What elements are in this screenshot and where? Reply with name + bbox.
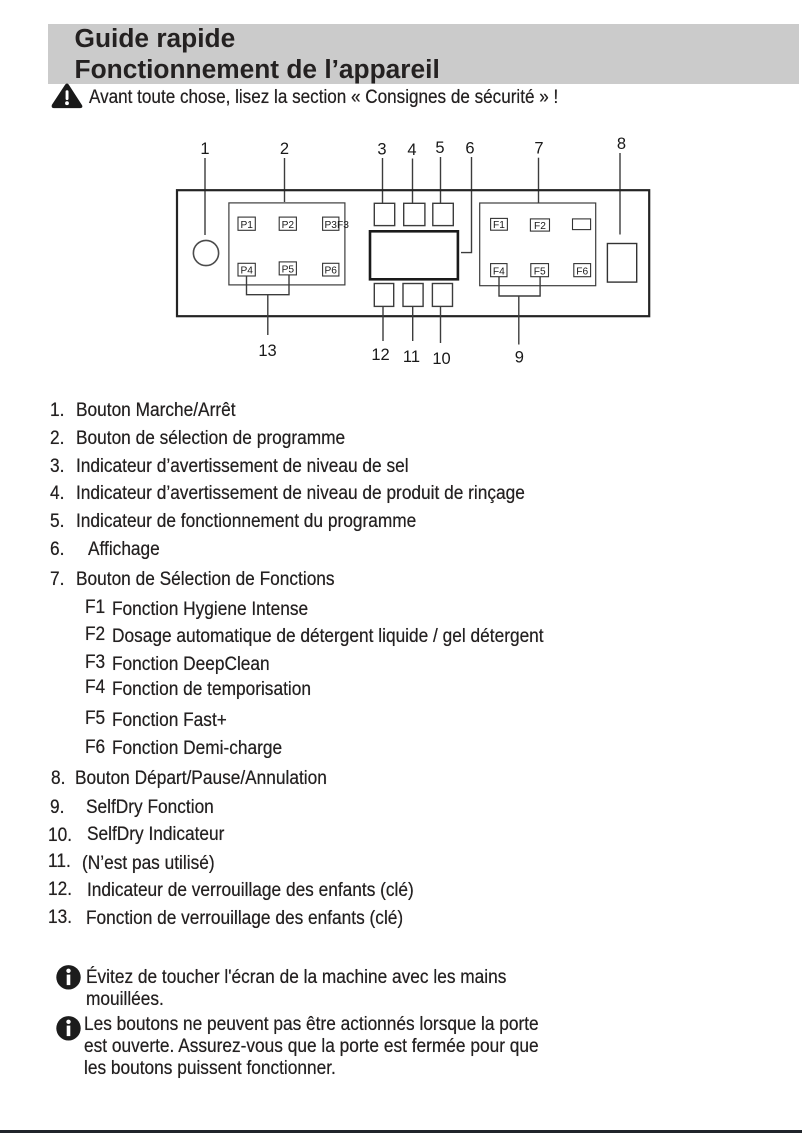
svg-text:12: 12: [371, 346, 389, 364]
svg-text:F3: F3: [337, 220, 349, 231]
svg-text:6: 6: [465, 140, 474, 158]
svg-text:P6: P6: [324, 266, 337, 277]
svg-text:7: 7: [534, 139, 543, 157]
svg-text:P1: P1: [240, 220, 253, 231]
svg-text:F4: F4: [493, 266, 505, 277]
svg-text:8: 8: [617, 135, 626, 153]
svg-text:P5: P5: [282, 264, 295, 275]
svg-text:F1: F1: [493, 220, 505, 231]
svg-text:F2: F2: [534, 221, 546, 232]
svg-text:11: 11: [403, 348, 420, 366]
svg-text:2: 2: [280, 140, 289, 158]
svg-text:5: 5: [435, 139, 444, 157]
svg-text:10: 10: [432, 350, 450, 368]
svg-text:13: 13: [258, 342, 276, 360]
svg-text:9: 9: [515, 349, 524, 367]
svg-text:P3: P3: [324, 220, 337, 231]
svg-text:3: 3: [377, 141, 386, 159]
svg-text:P2: P2: [282, 220, 295, 231]
svg-text:P4: P4: [240, 266, 253, 277]
svg-text:F5: F5: [534, 266, 546, 277]
svg-text:4: 4: [407, 141, 416, 159]
svg-text:1: 1: [200, 140, 209, 158]
svg-text:F6: F6: [576, 266, 588, 277]
